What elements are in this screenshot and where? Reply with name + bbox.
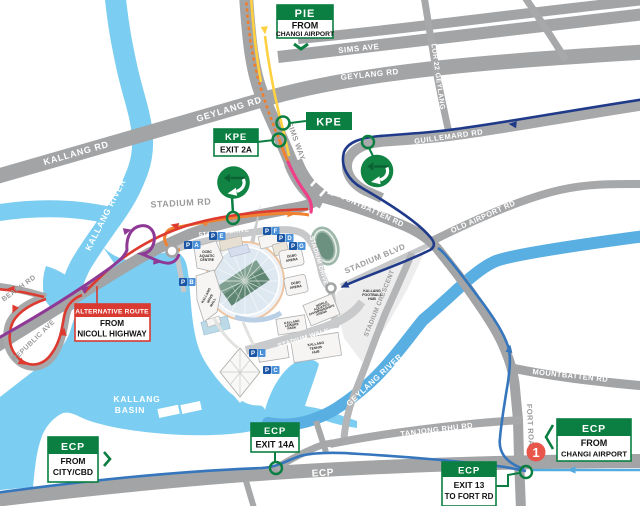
svg-text:B: B <box>189 280 194 286</box>
svg-text:KPE: KPE <box>225 132 247 143</box>
svg-text:ECP: ECP <box>458 466 480 477</box>
svg-text:KPE: KPE <box>316 117 342 129</box>
svg-text:ALTERNATIVE ROUTE: ALTERNATIVE ROUTE <box>75 309 149 316</box>
svg-text:CHANGI AIRPORT: CHANGI AIRPORT <box>276 31 335 38</box>
svg-text:A: A <box>194 243 199 249</box>
svg-text:ECP: ECP <box>61 441 85 453</box>
svg-text:P: P <box>186 243 190 249</box>
svg-text:FROM: FROM <box>100 319 124 328</box>
svg-text:FROM: FROM <box>60 456 85 466</box>
svg-text:CITY/CBD: CITY/CBD <box>53 467 93 477</box>
svg-text:ECP: ECP <box>311 467 334 479</box>
svg-text:ECP: ECP <box>582 423 606 435</box>
svg-text:P: P <box>251 351 255 357</box>
svg-text:EXIT 13: EXIT 13 <box>454 480 485 490</box>
svg-text:BASIN: BASIN <box>115 405 145 415</box>
svg-text:TO FORT RD: TO FORT RD <box>445 492 494 501</box>
svg-text:EXIT 14A: EXIT 14A <box>255 440 295 450</box>
svg-text:PIE: PIE <box>295 8 316 20</box>
svg-text:CENTRE: CENTRE <box>200 258 215 262</box>
svg-text:KALLANG: KALLANG <box>113 394 160 404</box>
svg-text:FROM: FROM <box>581 438 608 448</box>
svg-text:P: P <box>265 229 269 235</box>
svg-text:CHANGI AIRPORT: CHANGI AIRPORT <box>561 450 627 459</box>
svg-text:P: P <box>265 368 269 374</box>
svg-text:1: 1 <box>532 445 539 460</box>
svg-text:G: G <box>299 244 304 250</box>
svg-text:EXIT 2A: EXIT 2A <box>220 145 252 155</box>
svg-text:C: C <box>273 368 278 374</box>
svg-text:P: P <box>181 280 185 286</box>
svg-text:F: F <box>274 229 278 235</box>
svg-text:ECP: ECP <box>264 426 286 437</box>
svg-text:HUB: HUB <box>368 297 376 301</box>
svg-text:NICOLL HIGHWAY: NICOLL HIGHWAY <box>77 330 147 339</box>
svg-text:L: L <box>260 351 264 357</box>
svg-text:D: D <box>287 236 292 242</box>
svg-text:P: P <box>211 234 215 240</box>
svg-text:P: P <box>291 244 295 250</box>
svg-text:E: E <box>219 234 223 240</box>
svg-text:P: P <box>279 236 283 242</box>
svg-text:FROM: FROM <box>292 21 319 31</box>
